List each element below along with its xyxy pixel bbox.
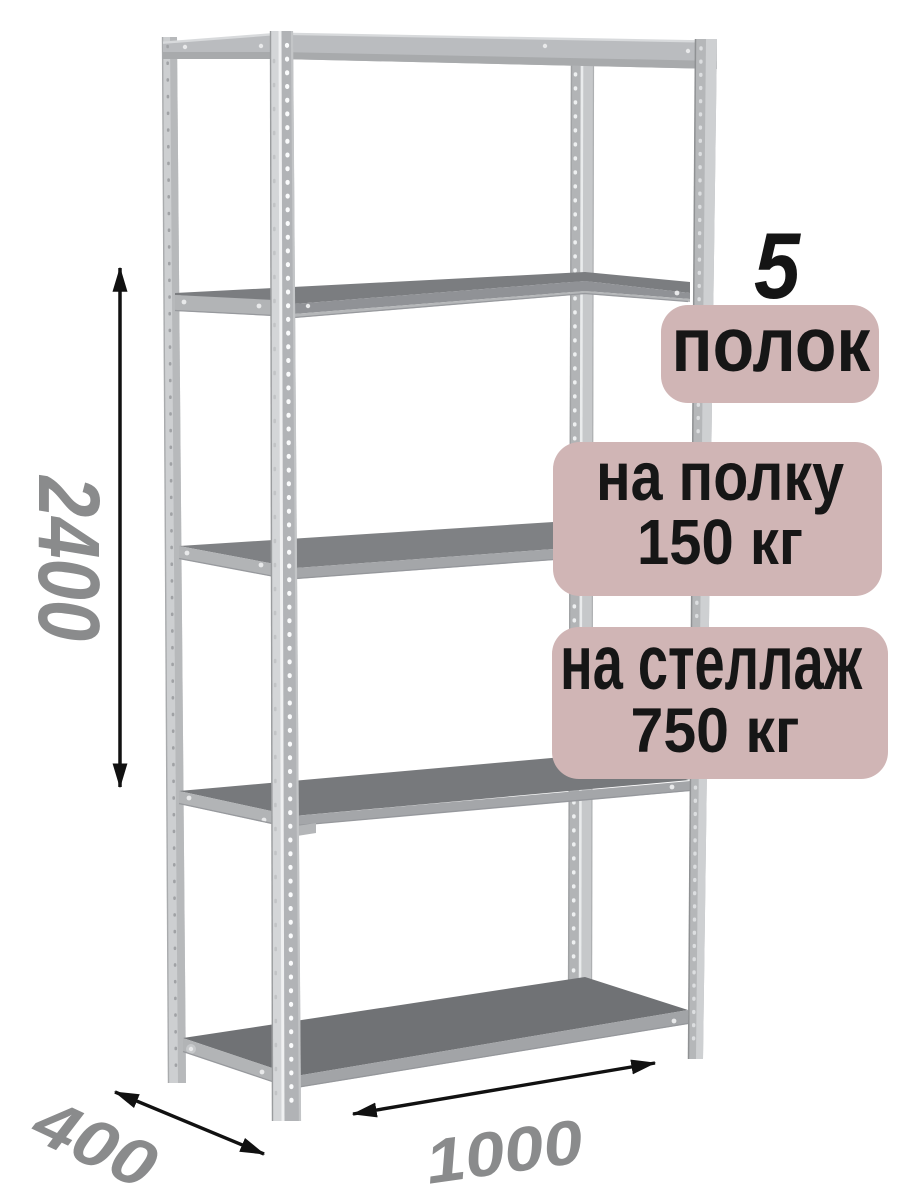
svg-text:полок: полок xyxy=(672,302,871,388)
svg-text:150 кг: 150 кг xyxy=(637,506,803,578)
svg-text:2400: 2400 xyxy=(20,474,117,641)
svg-text:на полку: на полку xyxy=(596,438,844,515)
svg-text:на стеллаж: на стеллаж xyxy=(560,620,863,706)
svg-text:750 кг: 750 кг xyxy=(631,696,800,766)
